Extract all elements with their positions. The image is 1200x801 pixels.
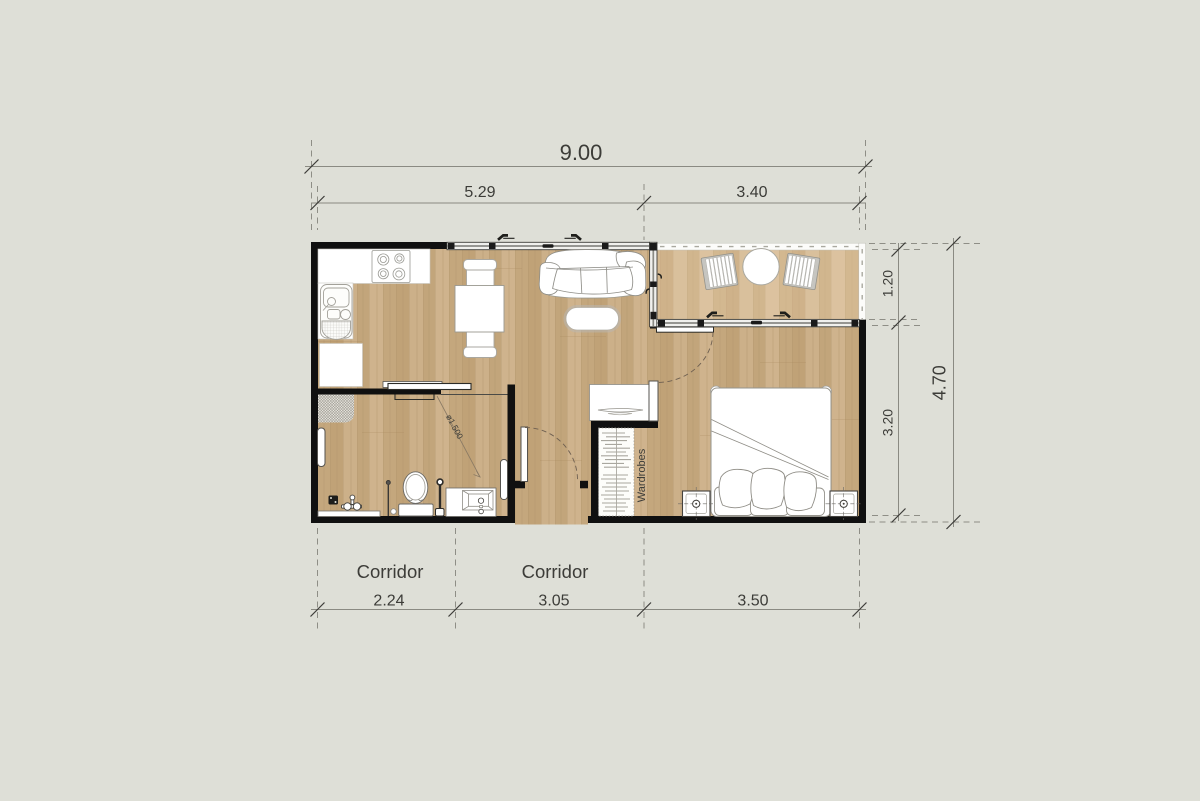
svg-text:5.29: 5.29 (464, 184, 495, 201)
svg-text:Corridor: Corridor (357, 561, 424, 582)
svg-text:4.70: 4.70 (930, 365, 950, 400)
svg-text:Corridor: Corridor (522, 561, 589, 582)
svg-text:1.20: 1.20 (880, 270, 896, 297)
svg-text:9.00: 9.00 (560, 140, 603, 165)
svg-text:3.50: 3.50 (737, 593, 768, 610)
svg-text:3.20: 3.20 (880, 409, 896, 436)
svg-text:3.05: 3.05 (538, 593, 569, 610)
svg-text:3.40: 3.40 (736, 184, 767, 201)
svg-text:2.24: 2.24 (373, 593, 404, 610)
svg-text:Wardrobes: Wardrobes (636, 448, 648, 502)
